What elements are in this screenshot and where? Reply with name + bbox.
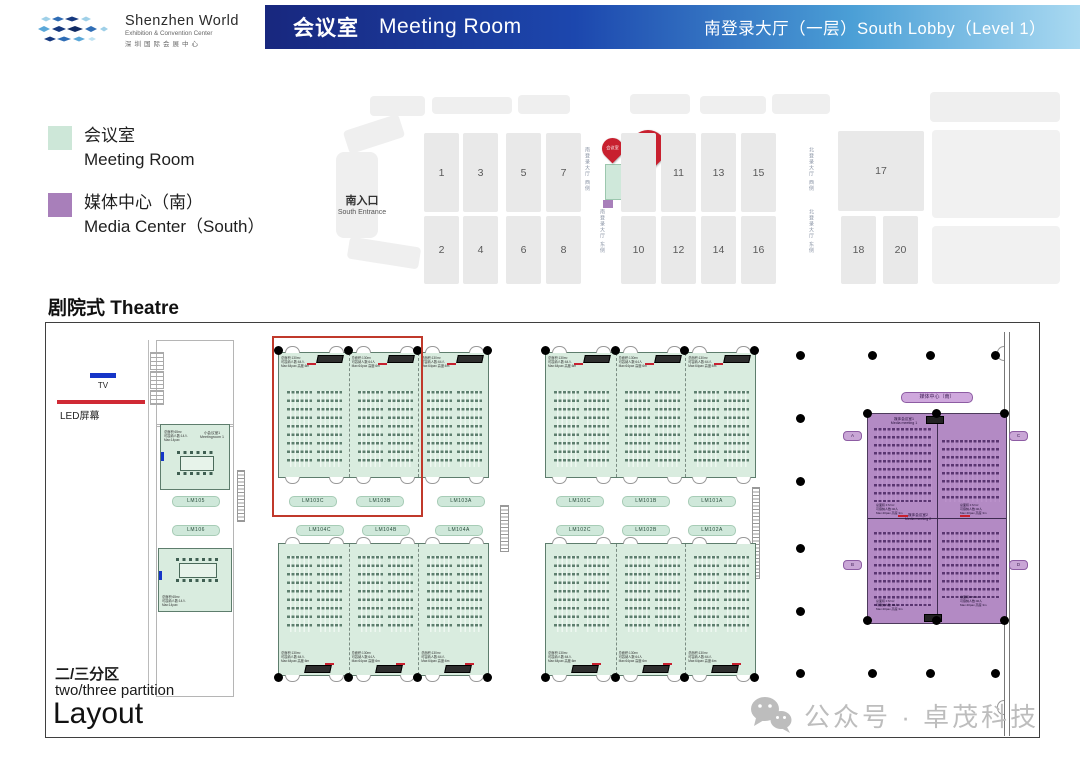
media-seat-block [942, 532, 1000, 598]
led-screen-mark [325, 663, 334, 665]
room-lm106: 总面积:65m² 可容纳人数:14人 Max:14pax [158, 548, 232, 612]
stage-block [654, 355, 682, 363]
column-dot [796, 351, 805, 360]
stage-block [571, 665, 599, 673]
media-side-label-c: C [1009, 431, 1028, 441]
stage-block [444, 665, 472, 673]
page-title-en: Meeting Room [379, 15, 522, 39]
door-arc [425, 346, 440, 353]
column-dot [796, 477, 805, 486]
column-dot [680, 673, 689, 682]
seat-block [358, 556, 383, 632]
column-dot [991, 351, 1000, 360]
media-room-info: 总面积:172m² 可容纳人数:40人 Max:40pax 高度:3m [876, 504, 918, 516]
room-info: 总面积:130m² 可容纳人数:64人 Max:64pax 高度:6m [421, 651, 457, 663]
partition-note-cn: 二/三分区 [55, 663, 119, 684]
stage-block [642, 665, 670, 673]
legend-meeting-en: Meeting Room [84, 148, 195, 172]
boardroom-table [179, 563, 217, 578]
header-bar: 会议室 Meeting Room 南登录大厅（一层）South Lobby（Le… [265, 5, 1080, 49]
seat-block [287, 556, 312, 632]
column-dot [932, 616, 941, 625]
seat-block [724, 556, 749, 632]
room-info: 总面积:130m² 可容纳人数:64人 Max:64pax 高度:6m [352, 651, 388, 663]
minimap-structure [932, 226, 1060, 284]
plan-title: 剧院式 Theatre [48, 293, 179, 320]
seat-block [655, 556, 680, 632]
media-side-label-b: B [843, 560, 862, 570]
room-info: 总面积:130m² 可容纳人数:64人 Max:64pax 高度:6m [281, 651, 317, 663]
column-dot [796, 544, 805, 553]
logo-text: Shenzhen World Exhibition & Convention C… [125, 13, 239, 48]
seat-block [317, 556, 342, 632]
page-title-cn: 会议室 [293, 12, 359, 42]
room-label-lm106: LM106 [172, 525, 220, 536]
corridor-label: 南登录大厅 东侧 [599, 209, 604, 267]
room-label-lm103a: LM103A [437, 496, 485, 507]
page-location: 南登录大厅（一层）South Lobby（Level 1） [704, 15, 1046, 39]
hall-partition: 总面积:130m² 可容纳人数:64人 Max:64pax 高度:6m [418, 353, 488, 477]
column-dot [926, 351, 935, 360]
stage-block [583, 355, 611, 363]
seat-block [388, 556, 413, 632]
media-seat-block [942, 440, 1000, 502]
stage-block [711, 665, 739, 673]
minimap-structure [518, 95, 570, 114]
south-entrance-en: South Entrance [330, 209, 394, 216]
room-label-lm105: LM105 [172, 496, 220, 507]
stairs [150, 390, 164, 405]
led-screen-mark [663, 663, 672, 665]
column-dot [541, 673, 550, 682]
column-dot [611, 346, 620, 355]
column-dot [611, 673, 620, 682]
minimap-hall-2: 2 [424, 216, 459, 284]
room-label-lm102b: LM102B [622, 525, 670, 536]
hall-partition: 总面积:130m² 可容纳人数:64人 Max:64pax 高度:6m [685, 353, 755, 477]
wechat-icon [748, 694, 794, 736]
door-arc [692, 346, 707, 353]
minimap-hall-16: 16 [741, 216, 776, 284]
column-dot [863, 409, 872, 418]
media-room1-cn: 媒体会议室1 [894, 417, 914, 421]
seat-block [694, 556, 719, 632]
minimap-hall-7: 7 [546, 133, 581, 212]
room-label-lm101c: LM101C [556, 496, 604, 507]
minimap-hall-4: 4 [463, 216, 498, 284]
escalator [237, 470, 245, 522]
minimap-hall-10: 10 [621, 216, 656, 284]
column-dot [926, 669, 935, 678]
minimap-structure [347, 237, 422, 270]
slide-meeting-room-floorplan: Shenzhen World Exhibition & Convention C… [0, 0, 1080, 764]
door-arc [596, 537, 611, 544]
media-seat-block [874, 428, 932, 502]
led-screen-mark [645, 363, 654, 365]
door-arc [469, 537, 484, 544]
room-label-lm102c: LM102C [556, 525, 604, 536]
seat-block [625, 556, 650, 632]
column-dot [680, 346, 689, 355]
led-screen-mark [396, 663, 405, 665]
room-info: 总面积:65m² 可容纳人数:14人 Max:14pax [162, 595, 186, 607]
minimap-hall-17: 17 [838, 131, 924, 211]
tv-mark [159, 571, 162, 580]
minimap-structure [930, 92, 1060, 122]
column-dot [796, 607, 805, 616]
hall-partition: 总面积:130m² 可容纳人数:64人 Max:64pax 高度:6m [546, 544, 616, 675]
minimap-hall-5: 5 [506, 133, 541, 212]
door-arc [356, 537, 371, 544]
door-arc [596, 346, 611, 353]
led-screen-mark [714, 363, 723, 365]
seat-block [427, 391, 452, 467]
column-dot [1000, 409, 1009, 418]
minimap-hall-9 [621, 133, 656, 212]
stage-block [456, 355, 484, 363]
media-room2-en: Media meeting 2 [896, 517, 940, 521]
hall-partition: 总面积:130m² 可容纳人数:64人 Max:64pax 高度:6m [685, 544, 755, 675]
hall-partition: 总面积:130m² 可容纳人数:64人 Max:64pax 高度:6m [349, 544, 419, 675]
corridor-label: 北登录大厅 西侧 [808, 147, 813, 205]
hall-partition: 总面积:130m² 可容纳人数:64人 Max:64pax 高度:6m [616, 353, 686, 477]
tv-mark [161, 452, 164, 461]
room-info: 总面积:65m² 可容纳人数:14人 Max:14pax [164, 430, 188, 442]
column-dot [796, 669, 805, 678]
minimap-hall-11: 11 [661, 133, 696, 212]
minimap-structure [772, 94, 830, 114]
door-arc [425, 537, 440, 544]
room-info: 总面积:130m² 可容纳人数:64人 Max:64pax 高度:6m [548, 651, 584, 663]
media-side-label-a: A [843, 431, 862, 441]
column-dot [1000, 616, 1009, 625]
seat-block [554, 391, 579, 467]
escalator [500, 505, 509, 552]
column-dot [274, 673, 283, 682]
shenzhen-world-logo-mark [36, 12, 116, 48]
led-screen-mark [898, 515, 908, 517]
minimap-hall-14: 14 [701, 216, 736, 284]
minimap-structure [370, 96, 425, 116]
legend-media-swatch [48, 193, 72, 217]
minimap-hall-6: 6 [506, 216, 541, 284]
logo-cn: 深圳国际会展中心 [125, 38, 239, 48]
led-legend-label: LED屏幕 [60, 407, 99, 422]
led-screen-mark [447, 363, 456, 365]
logo-name: Shenzhen World [125, 13, 239, 29]
led-screen-mark [592, 663, 601, 665]
column-dot [796, 414, 805, 423]
minimap-hall-1: 1 [424, 133, 459, 212]
wall-line [148, 340, 149, 695]
room-info: 总面积:130m² 可容纳人数:64人 Max:64pax 高度:6m [688, 651, 724, 663]
room-label-lm101b: LM101B [622, 496, 670, 507]
seat-block [457, 391, 482, 467]
media-side-label-d: D [1009, 560, 1028, 570]
stage-block [723, 355, 751, 363]
watermark-text: 公众号 · 卓茂科技 [804, 697, 1039, 734]
column-dot [868, 351, 877, 360]
media-room-info: 总面积:172m² 可容纳人数:40人 Max:40pax 高度:3m [960, 596, 1002, 608]
hall-partition: 总面积:130m² 可容纳人数:64人 Max:64pax 高度:6m [418, 544, 488, 675]
media-center-pill: 媒体中心（南） [901, 392, 973, 403]
chairs-row [177, 472, 215, 475]
media-seat-block [874, 532, 932, 606]
seat-block [457, 556, 482, 632]
room-label-lm104c: LM104C [296, 525, 344, 536]
column-dot [483, 346, 492, 355]
stairs [150, 371, 164, 389]
seat-block [584, 391, 609, 467]
room-label-lm102a: LM102A [688, 525, 736, 536]
door-arc [736, 537, 751, 544]
hall-partition: 总面积:130m² 可容纳人数:64人 Max:64pax 高度:6m [546, 353, 616, 477]
door-arc [469, 346, 484, 353]
minimap-hall-15: 15 [741, 133, 776, 212]
media-room-info: 总面积:172m² 可容纳人数:40人 Max:40pax 高度:3m [876, 600, 918, 612]
south-entrance-cn: 南入口 [330, 192, 394, 208]
highlight-rectangle [272, 336, 423, 517]
boardroom-table [180, 456, 214, 471]
minimap-structure [932, 130, 1060, 218]
led-screen-mark [574, 363, 583, 365]
layout-label: Layout [53, 697, 143, 731]
legend-media-cn: 媒体中心（南） [84, 191, 203, 215]
door-arc [552, 346, 567, 353]
room-info: 总面积:130m² 可容纳人数:64人 Max:64pax 高度:6m [619, 651, 655, 663]
door-arc [285, 537, 300, 544]
seat-block [655, 391, 680, 467]
door-arc [736, 346, 751, 353]
led-legend-mark [57, 400, 145, 404]
door-arc [400, 537, 415, 544]
door-arc [667, 537, 682, 544]
chairs-row [176, 558, 218, 561]
theatre-hall: 总面积:130m² 可容纳人数:64人 Max:64pax 高度:6m总面积:1… [278, 543, 489, 676]
minimap-hall-8: 8 [546, 216, 581, 284]
south-entrance-label: 南入口 South Entrance [330, 192, 394, 216]
map-pin-meeting-room-label: 会议室 [606, 138, 619, 159]
minimap-hall-18: 18 [841, 216, 876, 284]
column-dot [344, 673, 353, 682]
room-name: 小会议室1 Meetingroom 1 [198, 431, 226, 440]
logo-subtitle: Exhibition & Convention Center [125, 30, 239, 37]
chairs-row [176, 579, 218, 582]
minimap-structure [343, 114, 406, 155]
led-screen-mark [960, 515, 970, 517]
room-lm105: 总面积:65m² 可容纳人数:14人 Max:14pax 小会议室1 Meeti… [160, 424, 230, 490]
media-center-south: 媒体会议室1 Media meeting 1 媒体会议室2 Media meet… [867, 413, 1007, 624]
door-arc [692, 537, 707, 544]
column-dot [413, 673, 422, 682]
led-screen-mark [465, 663, 474, 665]
room-label-lm104a: LM104A [435, 525, 483, 536]
stage-block [375, 665, 403, 673]
seat-block [554, 556, 579, 632]
column-dot [750, 346, 759, 355]
column-dot [868, 669, 877, 678]
minimap-hall-3: 3 [463, 133, 498, 212]
logo: Shenzhen World Exhibition & Convention C… [36, 12, 239, 48]
door-arc [552, 537, 567, 544]
chairs-row [177, 451, 215, 454]
minimap-hall-13: 13 [701, 133, 736, 212]
corridor-label: 北登录大厅 东侧 [808, 209, 813, 267]
legend-media-en: Media Center（South） [84, 215, 264, 239]
seat-block [724, 391, 749, 467]
hall-partition: 总面积:130m² 可容纳人数:64人 Max:64pax 高度:6m [279, 544, 349, 675]
column-dot [750, 673, 759, 682]
minimap-hall-20: 20 [883, 216, 918, 284]
seat-block [427, 556, 452, 632]
hall-partition: 总面积:130m² 可容纳人数:64人 Max:64pax 高度:6m [616, 544, 686, 675]
column-dot [932, 409, 941, 418]
watermark: 公众号 · 卓茂科技 [748, 694, 1039, 736]
minimap-structure [630, 94, 690, 114]
column-dot [541, 346, 550, 355]
minimap-hall-12: 12 [661, 216, 696, 284]
stairs [150, 352, 164, 370]
door-arc [623, 537, 638, 544]
seat-block [584, 556, 609, 632]
minimap-structure [432, 97, 512, 114]
minimap-media-center-mark [603, 200, 613, 208]
seat-block [694, 391, 719, 467]
legend-meeting-swatch [48, 126, 72, 150]
led-screen-mark [732, 663, 741, 665]
media-room-info: 总面积:172m² 可容纳人数:40人 Max:40pax 高度:3m [960, 504, 1002, 516]
legend-meeting-cn: 会议室 [84, 124, 135, 148]
seat-block [625, 391, 650, 467]
column-dot [991, 669, 1000, 678]
door-arc [623, 346, 638, 353]
tv-legend-label: TV [86, 381, 120, 390]
column-dot [483, 673, 492, 682]
media-room1-en: Media meeting 1 [882, 421, 926, 425]
door-arc [329, 537, 344, 544]
column-dot [863, 616, 872, 625]
minimap-structure [700, 96, 766, 114]
tv-legend-mark [90, 373, 116, 378]
media-room1-label: 媒体会议室1 Media meeting 1 [882, 417, 926, 426]
theatre-hall: 总面积:130m² 可容纳人数:64人 Max:64pax 高度:6m总面积:1… [545, 352, 756, 478]
room-label-lm101a: LM101A [688, 496, 736, 507]
wall-outline [156, 340, 234, 427]
stage-block [304, 665, 332, 673]
corridor-label: 南登录大厅 西侧 [584, 147, 589, 205]
theatre-hall: 总面积:130m² 可容纳人数:64人 Max:64pax 高度:6m总面积:1… [545, 543, 756, 676]
room-label-lm104b: LM104B [362, 525, 410, 536]
